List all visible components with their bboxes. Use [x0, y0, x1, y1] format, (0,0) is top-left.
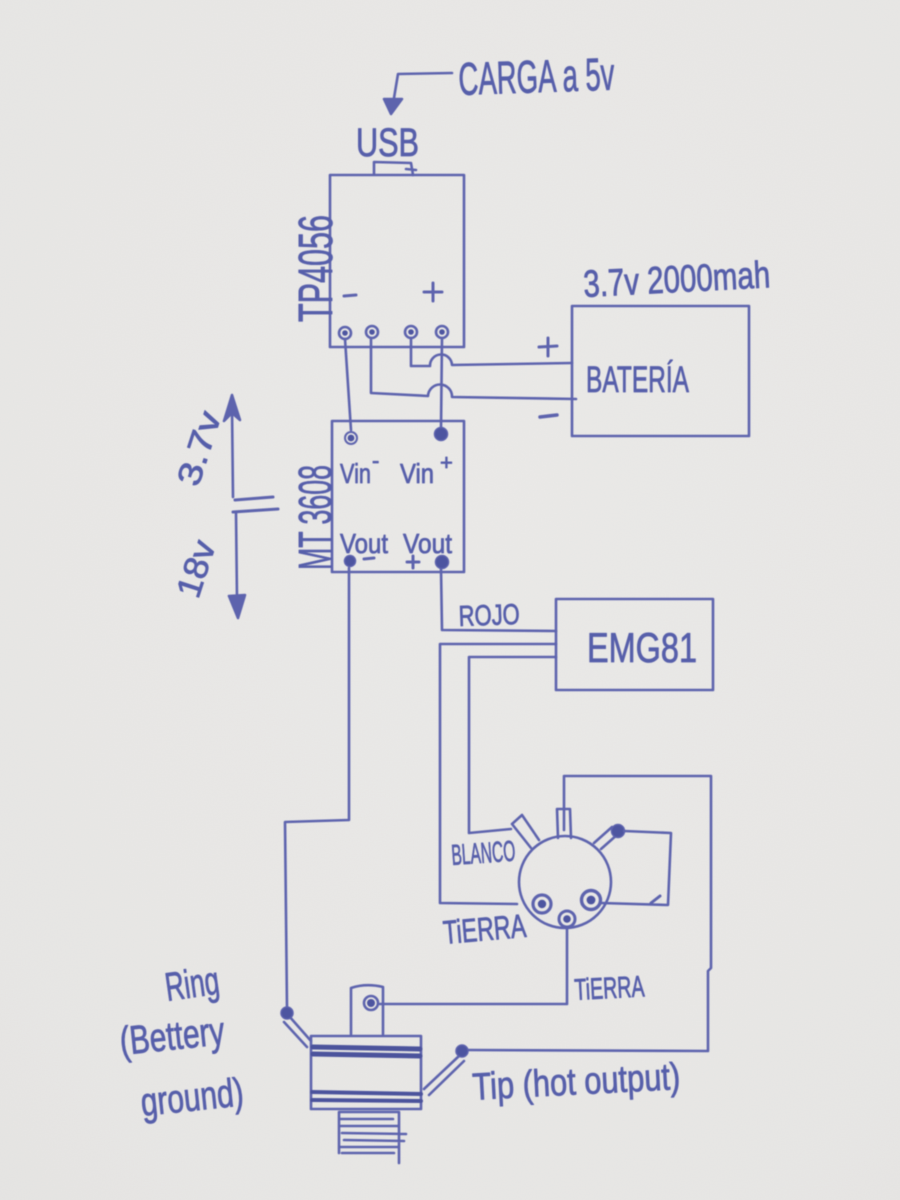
- svg-text:+: +: [440, 450, 453, 475]
- svg-text:BLANCO: BLANCO: [450, 836, 516, 872]
- svg-text:EMG81: EMG81: [587, 624, 697, 671]
- svg-text:Vin: Vin: [400, 458, 434, 489]
- svg-text:CARGA a 5v: CARGA a 5v: [458, 48, 616, 105]
- svg-text:Vin: Vin: [340, 458, 371, 489]
- svg-text:TiERRA: TiERRA: [574, 970, 646, 1007]
- svg-text:MT 3608: MT 3608: [289, 465, 341, 570]
- svg-text:TiERRA: TiERRA: [442, 907, 528, 951]
- svg-text:ROJO: ROJO: [458, 599, 520, 633]
- svg-text:Vout: Vout: [340, 528, 388, 559]
- svg-text:Vout: Vout: [403, 528, 452, 559]
- svg-text:TP4056: TP4056: [290, 215, 343, 322]
- svg-text:USB: USB: [356, 121, 419, 165]
- svg-text:-: -: [372, 448, 379, 473]
- svg-text:BATERÍA: BATERÍA: [586, 359, 689, 400]
- svg-text:Ring: Ring: [162, 959, 222, 1010]
